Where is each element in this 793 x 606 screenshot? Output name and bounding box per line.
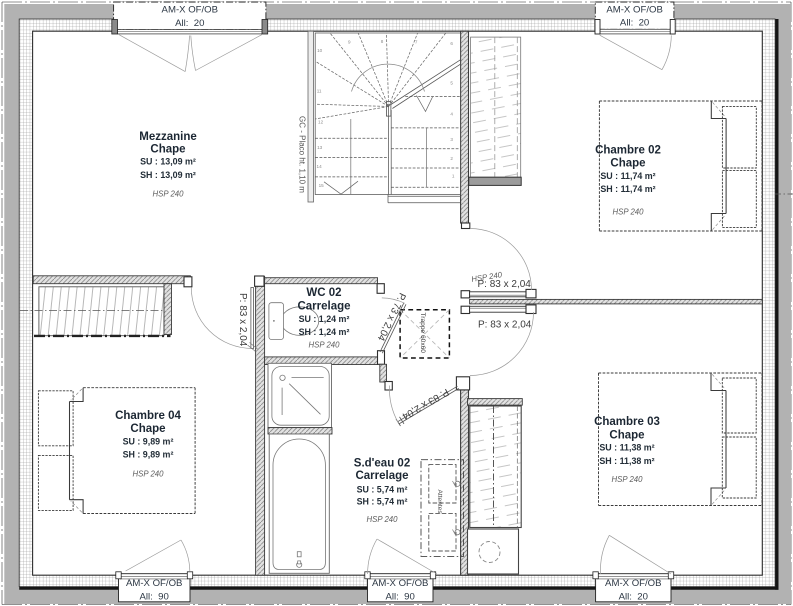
svg-text:6: 6 bbox=[450, 41, 453, 46]
svg-text:SU : 5,74 m²: SU : 5,74 m² bbox=[357, 484, 408, 494]
svg-text:All: 90: All: 90 bbox=[140, 591, 169, 602]
svg-text:SU : 13,09 m²: SU : 13,09 m² bbox=[140, 157, 196, 167]
svg-text:SH : 5,74 m²: SH : 5,74 m² bbox=[357, 496, 408, 506]
svg-text:SU : 9,89 m²: SU : 9,89 m² bbox=[123, 436, 174, 446]
svg-text:AM-X OF/OB: AM-X OF/OB bbox=[605, 578, 662, 589]
svg-text:10: 10 bbox=[317, 48, 323, 53]
svg-text:All: 90: All: 90 bbox=[386, 591, 415, 602]
svg-text:Carrelage: Carrelage bbox=[297, 301, 350, 313]
svg-text:Mezzanine: Mezzanine bbox=[139, 131, 197, 143]
svg-text:HSP 240: HSP 240 bbox=[367, 515, 399, 524]
svg-text:SH : 9,89 m²: SH : 9,89 m² bbox=[123, 450, 174, 460]
svg-text:WC 02: WC 02 bbox=[306, 287, 341, 299]
svg-text:13: 13 bbox=[317, 145, 323, 150]
svg-text:SH : 1,24 m²: SH : 1,24 m² bbox=[299, 327, 350, 337]
svg-text:HSP 240: HSP 240 bbox=[153, 190, 185, 199]
svg-text:Chape: Chape bbox=[610, 158, 645, 170]
svg-text:S.d'eau 02: S.d'eau 02 bbox=[354, 458, 410, 470]
svg-text:Carrelage: Carrelage bbox=[355, 470, 408, 482]
svg-text:SH : 13,09 m²: SH : 13,09 m² bbox=[140, 170, 196, 180]
svg-text:Chape: Chape bbox=[130, 423, 165, 435]
svg-text:Chambre 03: Chambre 03 bbox=[594, 416, 660, 428]
svg-text:8: 8 bbox=[381, 39, 384, 44]
svg-text:AM-X OF/OB: AM-X OF/OB bbox=[606, 4, 663, 15]
svg-text:3: 3 bbox=[450, 137, 453, 142]
svg-text:5: 5 bbox=[450, 80, 453, 85]
svg-text:7: 7 bbox=[415, 40, 418, 45]
svg-text:Attentes: Attentes bbox=[436, 490, 443, 515]
svg-text:AM-X OF/OB: AM-X OF/OB bbox=[126, 578, 183, 589]
svg-text:All: 20: All: 20 bbox=[175, 18, 204, 29]
svg-text:14: 14 bbox=[317, 164, 323, 169]
svg-text:Chape: Chape bbox=[609, 430, 644, 442]
svg-text:All: 20: All: 20 bbox=[620, 18, 649, 29]
svg-text:HSP 240: HSP 240 bbox=[133, 470, 165, 479]
svg-text:Chambre 04: Chambre 04 bbox=[115, 410, 181, 422]
svg-text:SH : 11,74 m²: SH : 11,74 m² bbox=[600, 184, 655, 194]
svg-text:SU : 1,24 m²: SU : 1,24 m² bbox=[299, 314, 350, 324]
svg-text:15: 15 bbox=[319, 183, 325, 188]
svg-text:9: 9 bbox=[348, 40, 351, 45]
svg-text:1: 1 bbox=[452, 174, 455, 179]
svg-text:AM-X OF/OB: AM-X OF/OB bbox=[372, 578, 429, 589]
svg-text:4: 4 bbox=[450, 111, 453, 116]
svg-text:Chambre 02: Chambre 02 bbox=[595, 145, 661, 157]
svg-text:Trappe 60x60: Trappe 60x60 bbox=[419, 313, 426, 354]
svg-text:SU : 11,74 m²: SU : 11,74 m² bbox=[600, 171, 655, 181]
svg-text:P: 83 x 2,04: P: 83 x 2,04 bbox=[478, 279, 532, 290]
svg-text:P: 83 x 2,04: P: 83 x 2,04 bbox=[237, 293, 248, 347]
svg-text:GC - Placo ht. 1,10 m: GC - Placo ht. 1,10 m bbox=[298, 116, 307, 193]
svg-text:Chape: Chape bbox=[150, 144, 185, 156]
svg-text:HSP 240: HSP 240 bbox=[309, 341, 341, 350]
svg-text:12: 12 bbox=[318, 120, 324, 125]
svg-text:SU : 11,38 m²: SU : 11,38 m² bbox=[599, 443, 654, 453]
svg-text:HSP 240: HSP 240 bbox=[613, 208, 645, 217]
svg-text:HSP 240: HSP 240 bbox=[612, 475, 644, 484]
svg-text:P: 83 x 2,04: P: 83 x 2,04 bbox=[478, 320, 532, 331]
svg-text:11: 11 bbox=[317, 88, 322, 93]
svg-text:SH : 11,38 m²: SH : 11,38 m² bbox=[599, 456, 654, 466]
svg-text:2: 2 bbox=[450, 156, 453, 161]
svg-text:All: 20: All: 20 bbox=[619, 591, 648, 602]
svg-text:AM-X OF/OB: AM-X OF/OB bbox=[162, 5, 219, 16]
